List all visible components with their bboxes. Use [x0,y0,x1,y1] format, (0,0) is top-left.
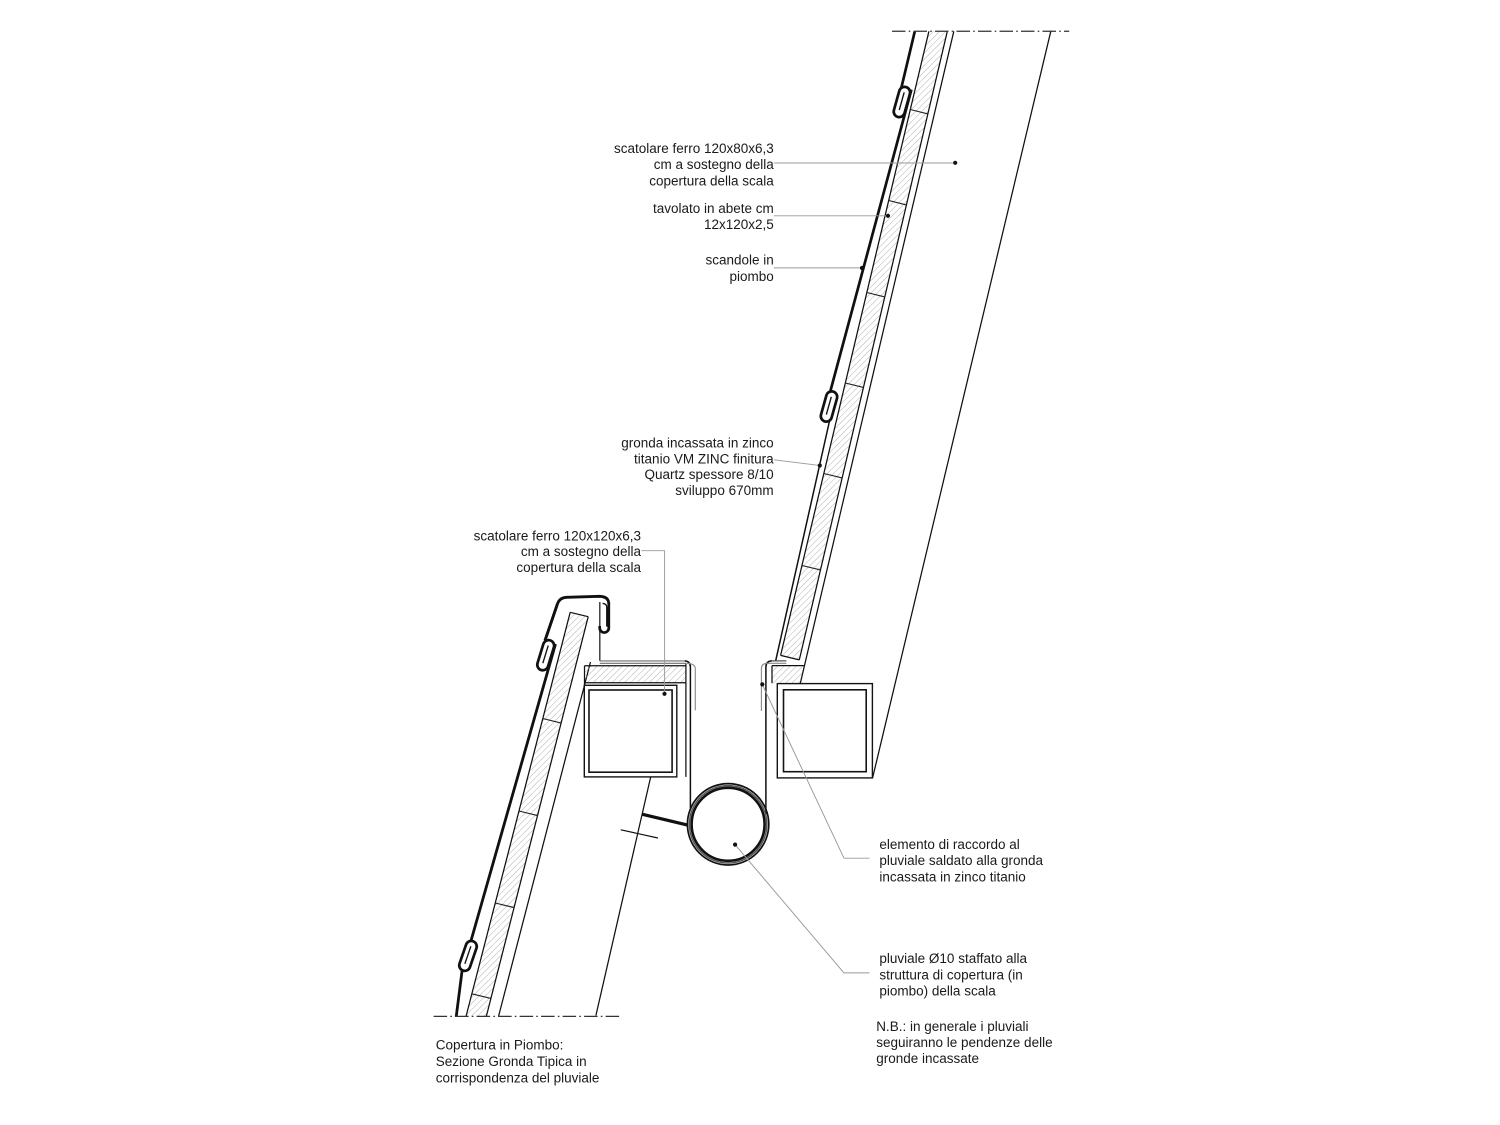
svg-text:gronda incassata in zinco: gronda incassata in zinco [621,435,773,450]
svg-text:incassata in zinco titanio: incassata in zinco titanio [879,869,1025,884]
svg-text:copertura della scala: copertura della scala [649,173,774,188]
svg-text:N.B.: in generale i pluviali: N.B.: in generale i pluviali [876,1019,1028,1034]
svg-text:scandole in: scandole in [705,253,773,268]
svg-text:pluviale saldato alla gronda: pluviale saldato alla gronda [879,853,1043,868]
svg-text:piombo: piombo [730,269,774,284]
svg-text:pluviale Ø10 staffato alla: pluviale Ø10 staffato alla [879,951,1027,966]
svg-text:scatolare ferro 120x120x6,3: scatolare ferro 120x120x6,3 [474,529,641,544]
svg-text:cm a sostegno della: cm a sostegno della [654,157,775,172]
svg-text:titanio VM ZINC finitura: titanio VM ZINC finitura [634,451,774,466]
svg-text:corrispondenza del pluviale: corrispondenza del pluviale [436,1070,600,1085]
svg-text:cm a sostegno della: cm a sostegno della [521,544,642,559]
svg-text:copertura della scala: copertura della scala [516,560,641,575]
svg-text:struttura di copertura (in: struttura di copertura (in [879,967,1022,982]
svg-text:seguiranno le pendenze delle: seguiranno le pendenze delle [876,1035,1052,1050]
svg-text:Sezione Gronda Tipica in: Sezione Gronda Tipica in [436,1054,587,1069]
svg-text:Quartz spessore 8/10: Quartz spessore 8/10 [645,467,774,482]
svg-text:scatolare ferro 120x80x6,3: scatolare ferro 120x80x6,3 [614,141,774,156]
svg-text:gronde incassate: gronde incassate [876,1051,979,1066]
svg-text:12x120x2,5: 12x120x2,5 [704,217,774,232]
svg-text:tavolato in abete cm: tavolato in abete cm [653,201,774,216]
svg-text:piombo) della scala: piombo) della scala [879,983,996,998]
svg-text:sviluppo 670mm: sviluppo 670mm [675,483,773,498]
svg-text:elemento di raccordo al: elemento di raccordo al [879,837,1019,852]
svg-text:Copertura in Piombo:: Copertura in Piombo: [436,1038,564,1053]
